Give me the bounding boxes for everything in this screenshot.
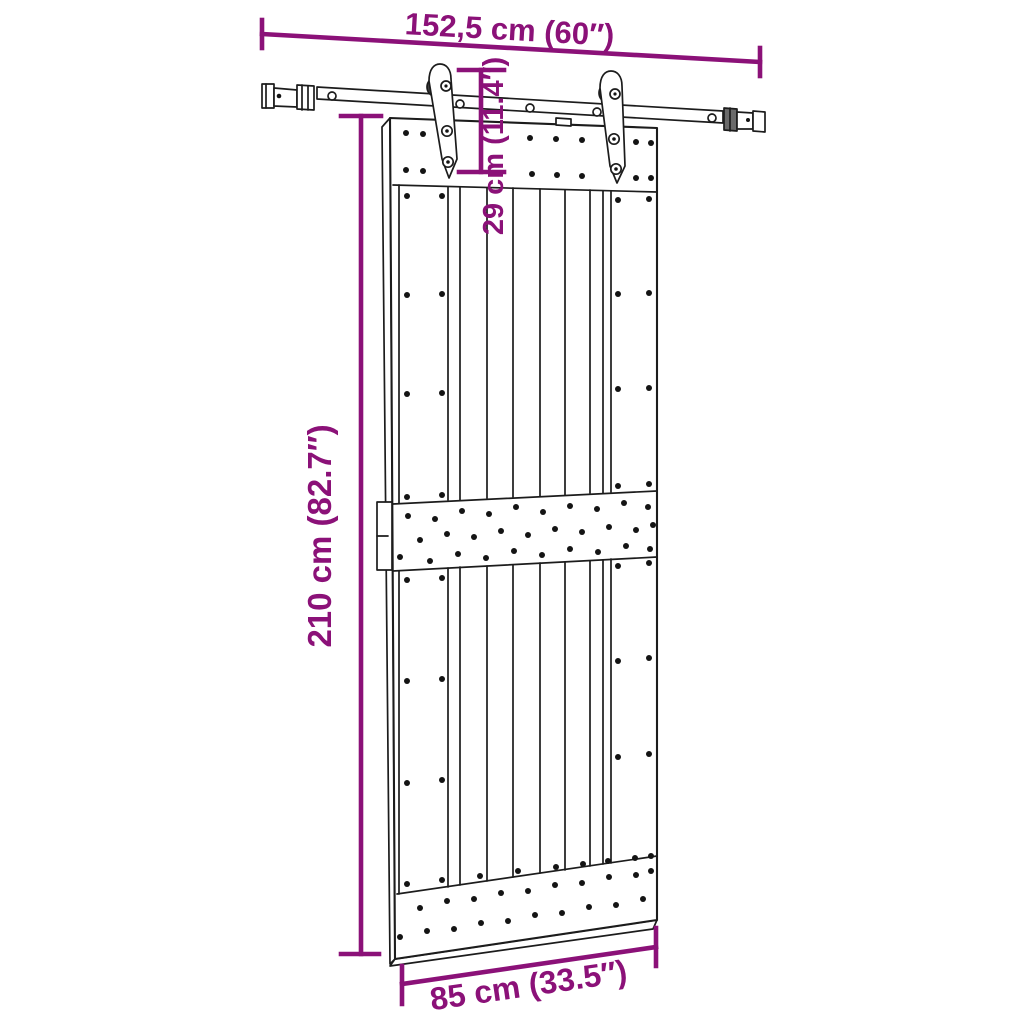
drop-label: 29 cm (11.4″)	[478, 57, 510, 235]
door-front-face	[390, 118, 657, 959]
dimension-door-height: 210 cm (82.7″)	[301, 116, 381, 954]
door-width-label: 85 cm (33.5″)	[428, 953, 630, 1017]
rail-left-end-stop	[262, 84, 314, 110]
barn-door-dimension-diagram: 152,5 cm (60″) 29 cm (11.4″) 210 cm (82.…	[0, 0, 1024, 1024]
door-handle	[377, 502, 392, 570]
door	[377, 118, 657, 966]
rail-right-end-stop	[724, 108, 765, 132]
dimension-rail-length: 152,5 cm (60″)	[262, 6, 760, 76]
door-height-label: 210 cm (82.7″)	[301, 424, 338, 647]
anti-jump-clip	[556, 118, 571, 126]
